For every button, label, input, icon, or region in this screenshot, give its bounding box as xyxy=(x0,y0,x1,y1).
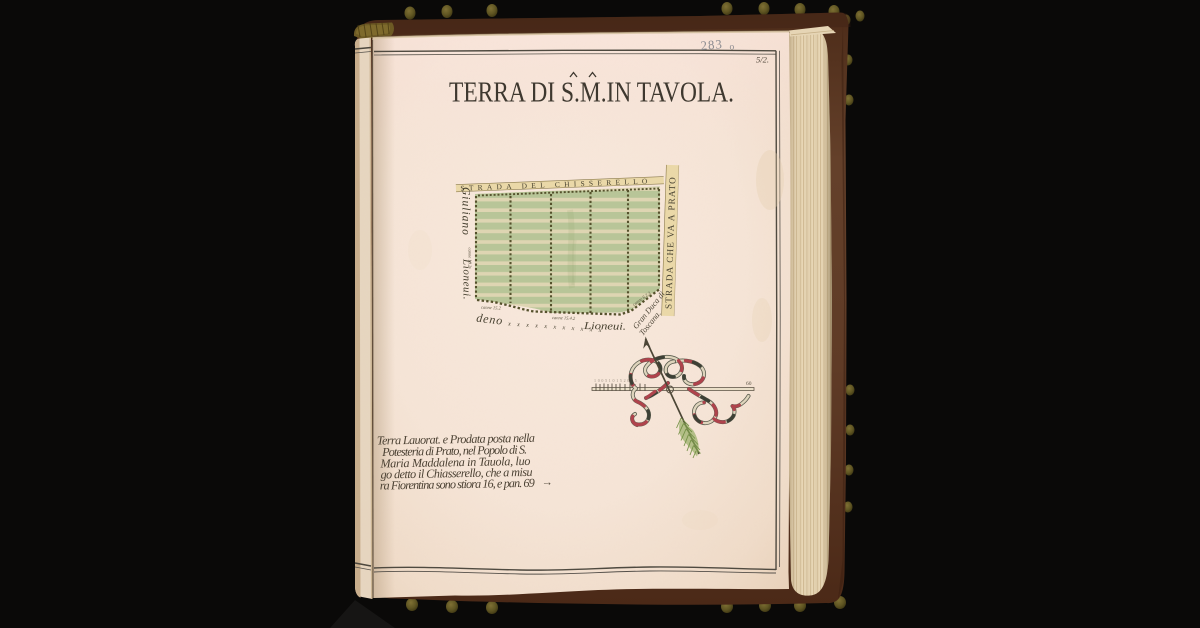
svg-text:canne 15.2: canne 15.2 xyxy=(481,305,502,311)
svg-text:ra Fiorentina sono stiora 16,: ra Fiorentina sono stiora 16, e pan. 69 xyxy=(380,476,535,493)
svg-text:Lioneui.: Lioneui. xyxy=(583,321,626,333)
svg-text:o: o xyxy=(730,43,735,53)
svg-text:283: 283 xyxy=(700,37,723,53)
svg-text:canne 15.4.2: canne 15.4.2 xyxy=(552,315,576,321)
svg-text:Giuliano: Giuliano xyxy=(460,187,472,236)
svg-text:60: 60 xyxy=(746,381,752,387)
svg-text:5/2.: 5/2. xyxy=(756,55,769,65)
svg-text:canne 10.2: canne 10.2 xyxy=(468,248,473,268)
svg-text:→: → xyxy=(542,476,553,488)
svg-text:TERRA DI S.M.IN TAVOLA.: TERRA DI S.M.IN TAVOLA. xyxy=(449,78,734,109)
